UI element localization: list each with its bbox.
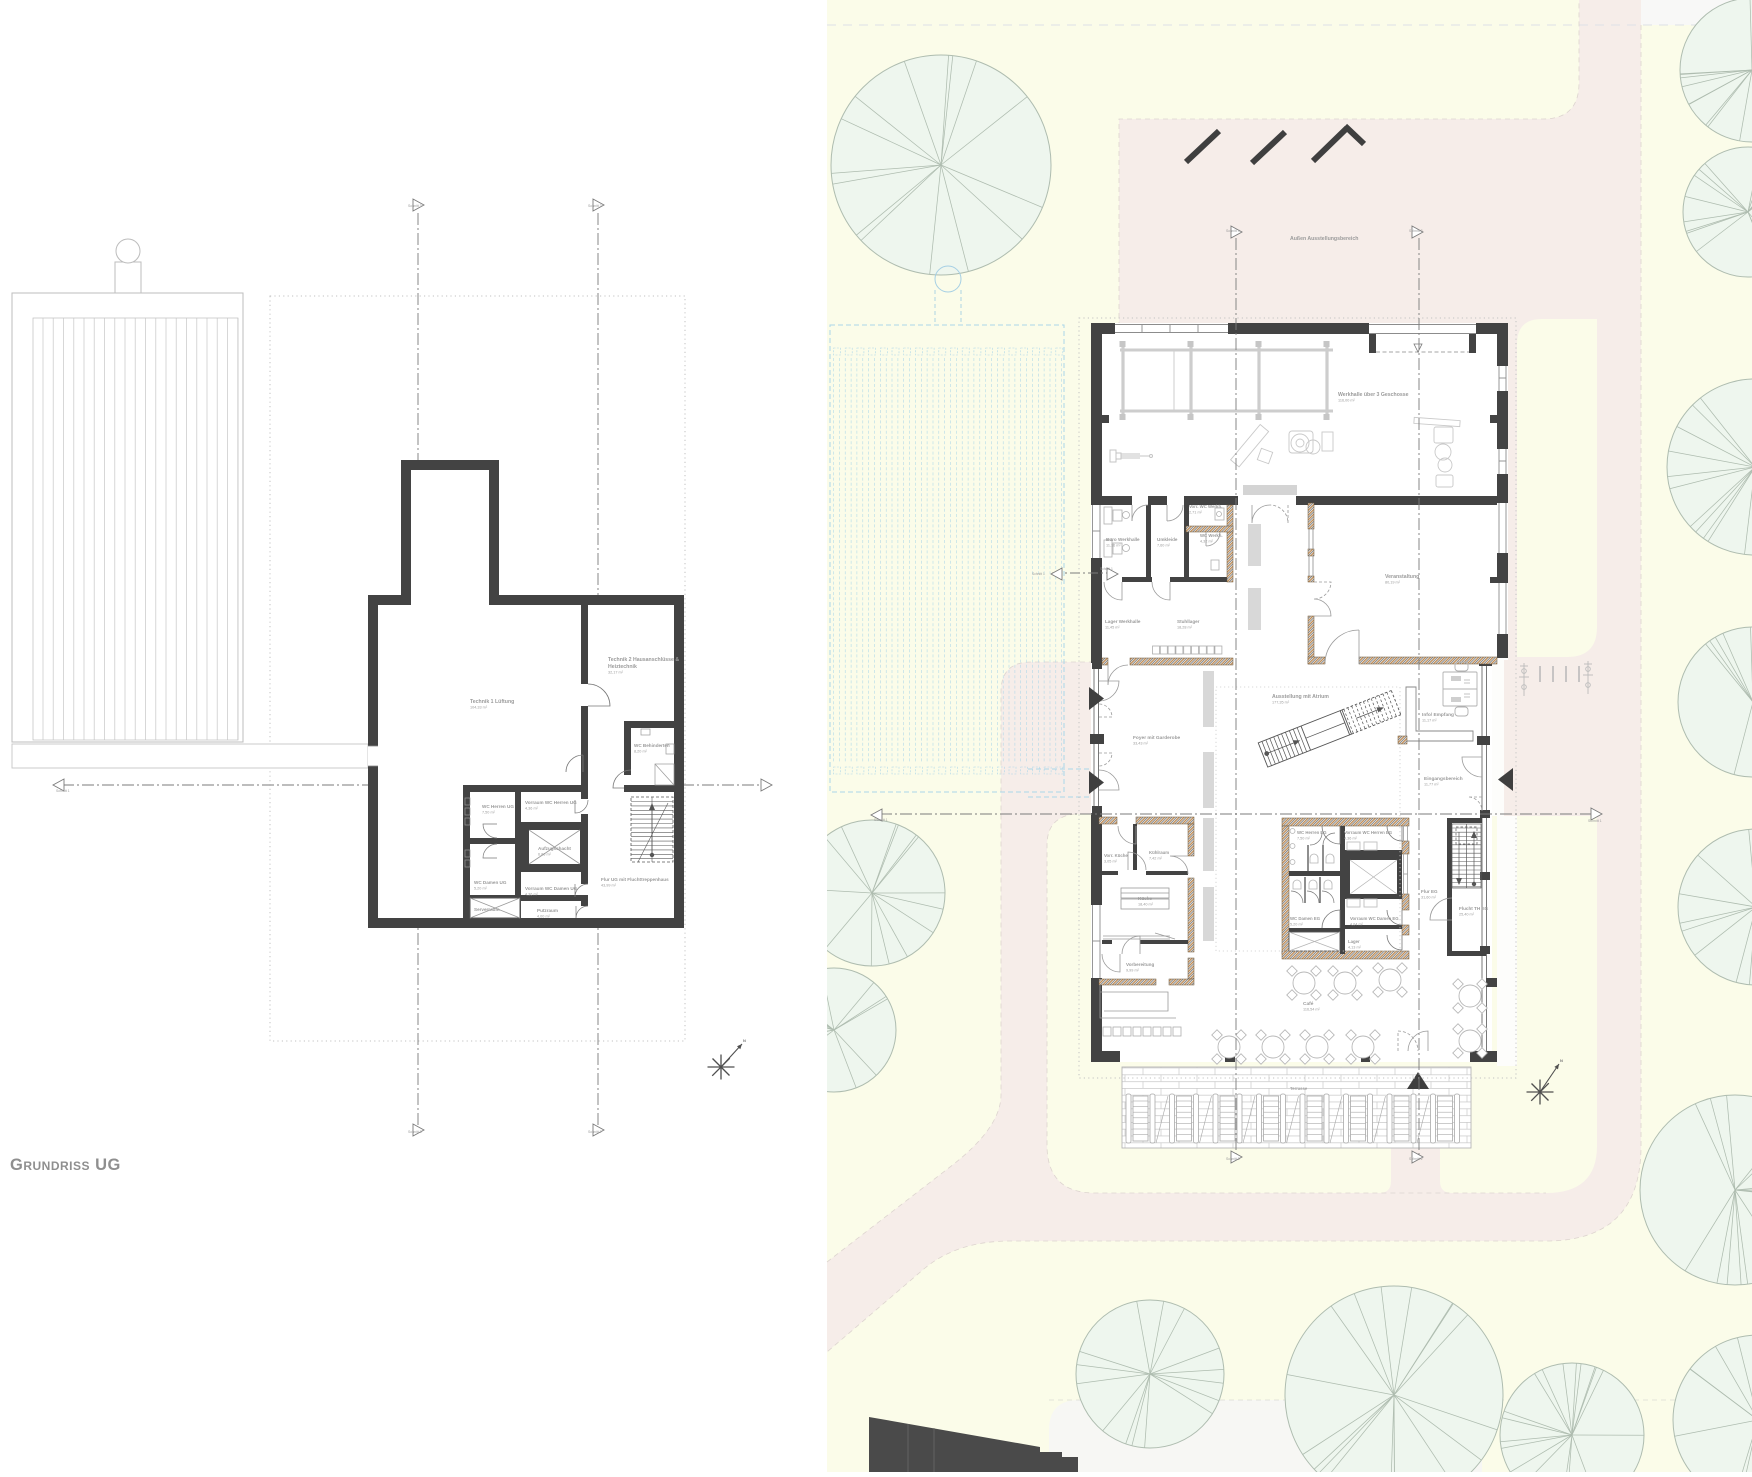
svg-text:31,60 m²: 31,60 m² [1421, 895, 1437, 899]
svg-text:25,40 m²: 25,40 m² [1459, 912, 1475, 916]
svg-text:2,71 m²: 2,71 m² [1189, 510, 1203, 514]
svg-text:Heiztechnik: Heiztechnik [608, 664, 637, 670]
svg-text:9,99 m²: 9,99 m² [1126, 968, 1140, 972]
svg-text:80,19 m²: 80,19 m² [1385, 580, 1401, 584]
svg-text:Foyer mit Garderobe: Foyer mit Garderobe [1133, 735, 1181, 741]
svg-text:Flur UG mit Fluchttreppenhaus: Flur UG mit Fluchttreppenhaus [601, 877, 669, 882]
svg-text:Schnitt 3: Schnitt 3 [1226, 229, 1240, 233]
svg-text:18,28 m²: 18,28 m² [1177, 625, 1193, 629]
svg-text:4,00 m²: 4,00 m² [537, 914, 551, 918]
svg-text:Vorraum WC Herren UG: Vorraum WC Herren UG [525, 800, 577, 805]
svg-text:4,36 m²: 4,36 m² [525, 892, 539, 896]
svg-text:Schnitt 2: Schnitt 2 [588, 1130, 602, 1134]
svg-text:WC Damen UG: WC Damen UG [474, 880, 507, 885]
svg-text:3,05 m²: 3,05 m² [1104, 859, 1118, 863]
svg-text:Café: Café [1303, 1001, 1314, 1007]
svg-text:Lager Werkhalle: Lager Werkhalle [1105, 619, 1141, 624]
svg-text:Vorbereitung: Vorbereitung [1126, 962, 1154, 967]
svg-text:11,77 m²: 11,77 m² [1424, 782, 1439, 786]
svg-text:Vorraum WC Herren EG: Vorraum WC Herren EG [1344, 830, 1393, 835]
svg-text:4,04 m²: 4,04 m² [1350, 922, 1364, 926]
svg-text:104,33 m²: 104,33 m² [470, 705, 488, 709]
svg-text:Vorr. Küche: Vorr. Küche [1104, 853, 1128, 858]
svg-text:7,50 m²: 7,50 m² [1297, 836, 1311, 840]
svg-text:Schnitt 3: Schnitt 3 [408, 204, 422, 208]
svg-text:WC Herren EG: WC Herren EG [1297, 830, 1327, 835]
svg-text:Schnitt 2: Schnitt 2 [588, 204, 602, 208]
svg-text:Schnitt 1: Schnitt 1 [1100, 567, 1113, 571]
svg-text:Terrasse: Terrasse [1290, 1086, 1308, 1091]
svg-text:116,54 m²: 116,54 m² [1303, 1007, 1321, 1011]
svg-text:5,20 m²: 5,20 m² [474, 886, 488, 890]
svg-text:4,36 m²: 4,36 m² [525, 806, 539, 810]
svg-text:11,17 m²: 11,17 m² [1422, 718, 1437, 722]
svg-text:11,16 m²: 11,16 m² [1106, 543, 1121, 547]
svg-text:Flur EG: Flur EG [1421, 889, 1438, 894]
svg-text:Ausstellung mit Atrium: Ausstellung mit Atrium [1272, 694, 1329, 700]
svg-text:4,13 m²: 4,13 m² [1348, 945, 1362, 949]
svg-text:Flucht TH EG: Flucht TH EG [1459, 906, 1489, 911]
svg-text:Vorraum WC Damen EG: Vorraum WC Damen EG [1350, 916, 1399, 921]
svg-text:WC Herren UG: WC Herren UG [482, 804, 514, 809]
svg-text:33,43 m²: 33,43 m² [1133, 741, 1149, 745]
svg-text:32,17 m²: 32,17 m² [608, 670, 624, 674]
svg-text:Vorraum WC Damen UG: Vorraum WC Damen UG [525, 886, 578, 891]
svg-text:Büro Werkhalle: Büro Werkhalle [1106, 537, 1140, 542]
svg-text:Technik 2 Hausanschlüsse &: Technik 2 Hausanschlüsse & [608, 657, 679, 663]
svg-text:Stuhllager: Stuhllager [1177, 619, 1200, 624]
svg-text:116,00 m²: 116,00 m² [1338, 398, 1356, 402]
svg-text:WC Werkh.: WC Werkh. [1200, 533, 1223, 538]
svg-text:8,20 m²: 8,20 m² [634, 749, 648, 753]
svg-text:Veranstaltung: Veranstaltung [1385, 574, 1419, 580]
svg-text:7,42 m²: 7,42 m² [1149, 856, 1163, 860]
svg-text:Schnitt 2: Schnitt 2 [1409, 229, 1423, 233]
svg-text:Grundriss UG: Grundriss UG [10, 1156, 121, 1174]
svg-text:18,40 m²: 18,40 m² [1138, 902, 1154, 906]
svg-text:Serverraum: Serverraum [474, 907, 500, 912]
svg-text:177,35 m²: 177,35 m² [1272, 700, 1290, 704]
svg-text:5,20 m²: 5,20 m² [1290, 922, 1304, 926]
svg-text:Schnitt 3: Schnitt 3 [1226, 1157, 1240, 1161]
svg-text:Aufzugschacht: Aufzugschacht [538, 846, 571, 851]
svg-text:Küche: Küche [1138, 896, 1152, 901]
svg-text:Umkleide: Umkleide [1157, 537, 1178, 542]
svg-text:6,86 m²: 6,86 m² [538, 852, 552, 856]
svg-text:N: N [743, 1038, 746, 1043]
svg-text:Info/ Empfang: Info/ Empfang [1422, 712, 1454, 718]
svg-text:4,36 m²: 4,36 m² [1344, 836, 1358, 840]
svg-text:43,99 m²: 43,99 m² [601, 883, 617, 887]
svg-text:WC Damen EG: WC Damen EG [1290, 916, 1321, 921]
svg-text:N: N [1560, 1058, 1563, 1063]
svg-text:4,32 m²: 4,32 m² [1200, 539, 1214, 543]
svg-text:Außen Ausstellungsbereich: Außen Ausstellungsbereich [1290, 236, 1358, 242]
svg-text:7,50 m²: 7,50 m² [482, 810, 496, 814]
svg-text:Lager: Lager [1348, 939, 1360, 944]
svg-text:Vorr. WC Werkh.: Vorr. WC Werkh. [1189, 504, 1222, 509]
svg-text:Putzraum: Putzraum [537, 908, 558, 913]
svg-text:Schnitt 1: Schnitt 1 [874, 818, 888, 822]
svg-text:Schnitt 3: Schnitt 3 [408, 1130, 422, 1134]
svg-text:Schnitt 1: Schnitt 1 [1032, 572, 1045, 576]
svg-text:Eingangsbereich: Eingangsbereich [1424, 776, 1463, 782]
svg-text:7,60 m²: 7,60 m² [1157, 543, 1171, 547]
svg-text:Kühlraum: Kühlraum [1149, 850, 1169, 855]
svg-text:WC Behinderten: WC Behinderten [634, 743, 670, 748]
svg-text:Schnitt 1: Schnitt 1 [1588, 819, 1602, 823]
svg-text:Technik 1 Lüftung: Technik 1 Lüftung [470, 699, 514, 705]
svg-text:Schnitt 2: Schnitt 2 [1409, 1157, 1423, 1161]
svg-text:Schnitt 1: Schnitt 1 [56, 789, 70, 793]
svg-text:11,45 m²: 11,45 m² [1105, 625, 1120, 629]
svg-text:Werkhalle über 3 Geschosse: Werkhalle über 3 Geschosse [1338, 392, 1409, 398]
